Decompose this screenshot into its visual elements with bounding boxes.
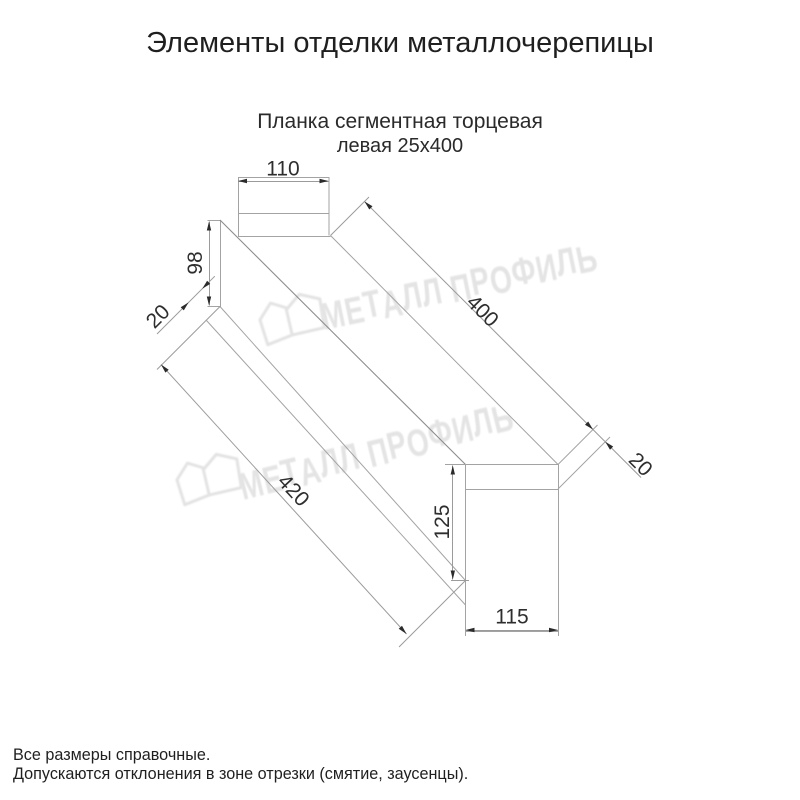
- svg-text:МЕТАЛЛ ПРОФИЛЬ: МЕТАЛЛ ПРОФИЛЬ: [316, 236, 602, 340]
- svg-text:левая 25х400: левая 25х400: [337, 135, 463, 157]
- svg-text:115: 115: [495, 606, 528, 629]
- svg-text:110: 110: [266, 158, 299, 181]
- svg-text:МЕТАЛЛ ПРОФИЛЬ: МЕТАЛЛ ПРОФИЛЬ: [234, 395, 520, 510]
- svg-text:Допускаются отклонения в зоне: Допускаются отклонения в зоне отрезки (с…: [13, 765, 468, 783]
- svg-text:Планка сегментная торцевая: Планка сегментная торцевая: [257, 110, 543, 133]
- svg-text:98: 98: [184, 251, 207, 274]
- svg-text:Элементы отделки металлочерепи: Элементы отделки металлочерепицы: [146, 27, 654, 59]
- svg-text:20: 20: [624, 448, 657, 481]
- svg-text:125: 125: [431, 504, 454, 539]
- svg-text:Все размеры справочные.: Все размеры справочные.: [13, 746, 210, 764]
- svg-text:20: 20: [142, 300, 175, 333]
